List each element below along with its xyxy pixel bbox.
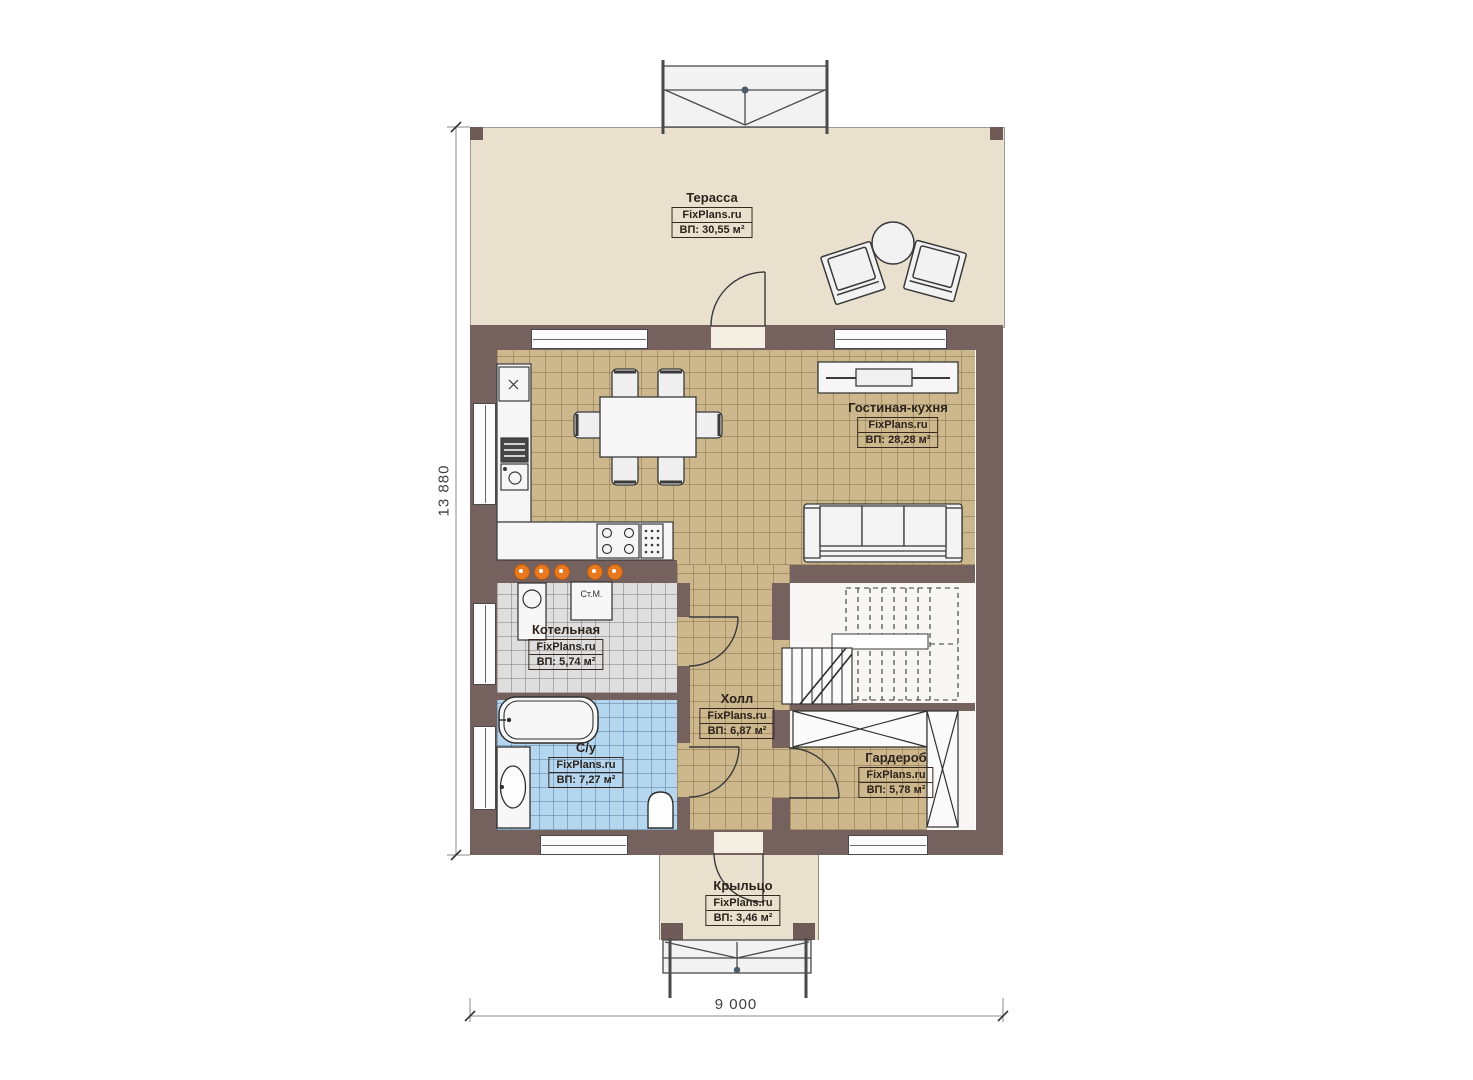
downlight-dot-4	[587, 564, 603, 580]
room-info-box-hall: FixPlans.ru ВП: 6,87 м²	[699, 708, 774, 739]
window-west-boiler	[473, 603, 496, 685]
room-label-boiler: Котельная FixPlans.ru ВП: 5,74 м²	[528, 622, 603, 670]
room-area-boiler: ВП: 5,74 м²	[529, 655, 602, 669]
porch-door-opening	[714, 832, 763, 853]
room-info-box-porch: FixPlans.ru ВП: 3,46 м²	[705, 895, 780, 926]
terrace-door-opening	[711, 327, 765, 348]
room-name-boiler: Котельная	[528, 622, 603, 637]
room-area-living-kitchen: ВП: 28,28 м²	[859, 433, 938, 447]
washing-machine-label: Ст.М.	[571, 589, 612, 599]
window-south-wardrobe	[848, 835, 928, 855]
wall-boiler-bathroom	[497, 693, 677, 700]
room-name-terrace: Терасса	[672, 190, 753, 205]
window-west-bathroom	[473, 726, 496, 810]
room-info-box-living-kitchen: FixPlans.ru ВП: 28,28 м²	[858, 417, 939, 448]
downlight-dot-1	[514, 564, 530, 580]
terrace-steps	[663, 60, 827, 134]
room-label-bathroom: С/у FixPlans.ru ВП: 7,27 м²	[548, 740, 623, 788]
room-name-porch: Крыльцо	[705, 878, 780, 893]
wall-hall-left-c	[677, 797, 690, 830]
staircase-area-floor	[790, 583, 975, 703]
window-north-2	[834, 329, 947, 349]
room-label-terrace: Терасса FixPlans.ru ВП: 30,55 м²	[672, 190, 753, 238]
room-label-living-kitchen: Гостиная-кухня FixPlans.ru ВП: 28,28 м²	[848, 400, 948, 448]
room-brand-bathroom: FixPlans.ru	[549, 758, 622, 773]
wall-east	[976, 325, 1003, 855]
room-area-hall: ВП: 6,87 м²	[700, 724, 773, 738]
room-label-porch: Крыльцо FixPlans.ru ВП: 3,46 м²	[705, 878, 780, 926]
window-west-kitchen	[473, 403, 496, 505]
porch-pillar-left	[661, 923, 683, 940]
living-kitchen-floor	[497, 350, 975, 565]
floor-plan-canvas: Терасса FixPlans.ru ВП: 30,55 м² Гостина…	[0, 0, 1473, 1080]
downlight-dot-5	[607, 564, 623, 580]
room-area-terrace: ВП: 30,55 м²	[673, 223, 752, 237]
room-info-box-bathroom: FixPlans.ru ВП: 7,27 м²	[548, 757, 623, 788]
downlight-dot-3	[554, 564, 570, 580]
room-name-bathroom: С/у	[548, 740, 623, 755]
room-brand-living-kitchen: FixPlans.ru	[859, 418, 938, 433]
dimension-height-label: 13 880	[436, 461, 453, 521]
room-brand-porch: FixPlans.ru	[706, 896, 779, 911]
wall-living-stairs	[790, 565, 975, 583]
downlight-dot-2	[534, 564, 550, 580]
wall-hall-left-b	[677, 666, 690, 743]
room-label-hall: Холл FixPlans.ru ВП: 6,87 м²	[699, 691, 774, 739]
room-info-box-wardrobe: FixPlans.ru ВП: 5,78 м²	[858, 767, 933, 798]
wall-hall-right-c	[772, 798, 790, 830]
room-brand-terrace: FixPlans.ru	[673, 208, 752, 223]
room-area-porch: ВП: 3,46 м²	[706, 911, 779, 925]
wall-hall-right-b	[772, 710, 790, 748]
room-brand-boiler: FixPlans.ru	[529, 640, 602, 655]
terrace-post-right	[990, 127, 1003, 140]
wall-stairs-wardrobe	[790, 703, 975, 711]
room-area-bathroom: ВП: 7,27 м²	[549, 773, 622, 787]
porch-steps	[663, 938, 811, 998]
dimension-width-label: 9 000	[686, 996, 786, 1013]
wall-hall-right-a	[772, 583, 790, 640]
room-info-box-terrace: FixPlans.ru ВП: 30,55 м²	[672, 207, 753, 238]
room-name-wardrobe: Гардероб	[858, 750, 933, 765]
room-area-wardrobe: ВП: 5,78 м²	[859, 783, 932, 797]
terrace-post-left	[470, 127, 483, 140]
room-brand-wardrobe: FixPlans.ru	[859, 768, 932, 783]
room-name-living-kitchen: Гостиная-кухня	[848, 400, 948, 415]
room-name-hall: Холл	[699, 691, 774, 706]
window-south-bathroom	[540, 835, 628, 855]
room-label-wardrobe: Гардероб FixPlans.ru ВП: 5,78 м²	[858, 750, 933, 798]
room-brand-hall: FixPlans.ru	[700, 709, 773, 724]
porch-pillar-right	[793, 923, 815, 940]
wall-hall-left-a	[677, 583, 690, 617]
room-info-box-boiler: FixPlans.ru ВП: 5,74 м²	[528, 639, 603, 670]
window-north-1	[531, 329, 648, 349]
